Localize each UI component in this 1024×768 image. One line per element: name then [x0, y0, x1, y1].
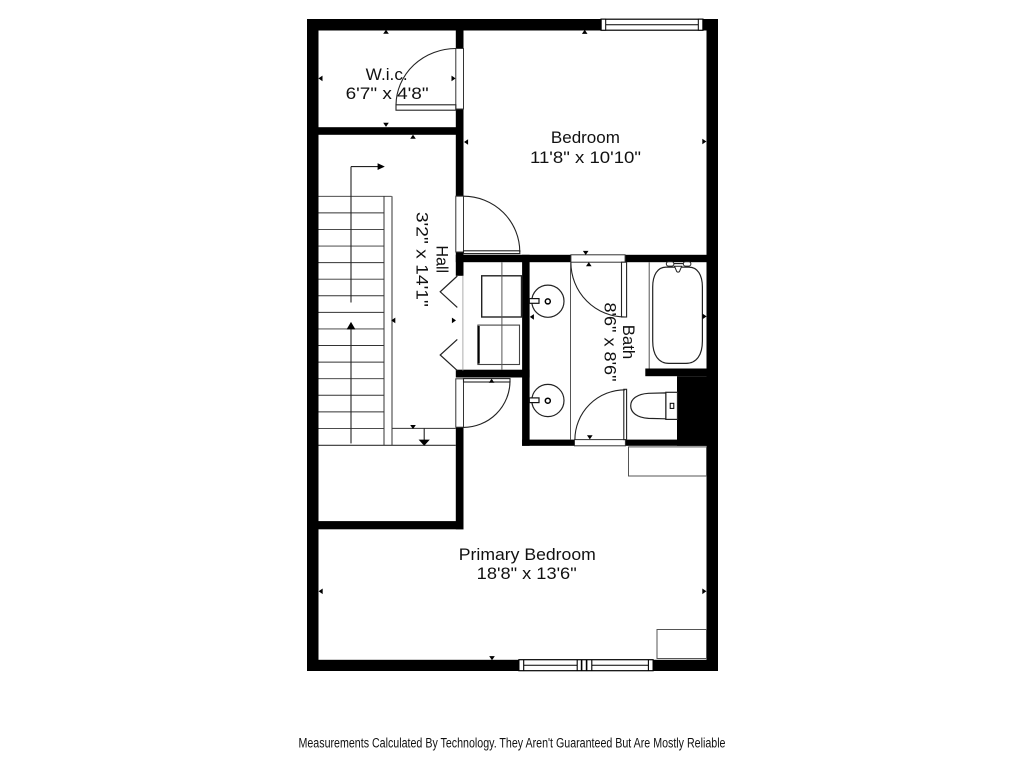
svg-text:Primary Bedroom: Primary Bedroom	[459, 545, 596, 564]
svg-text:Hall: Hall	[433, 246, 452, 274]
svg-text:18'8" x 13'6": 18'8" x 13'6"	[477, 564, 577, 583]
svg-text:8'6" x 8'6": 8'6" x 8'6"	[601, 303, 620, 382]
svg-text:Bath: Bath	[619, 325, 638, 360]
svg-text:Bedroom: Bedroom	[551, 128, 620, 147]
svg-text:3'2" x 14'1": 3'2" x 14'1"	[412, 212, 431, 307]
svg-text:6'7" x 4'8": 6'7" x 4'8"	[346, 84, 429, 103]
svg-text:Measurements Calculated By Tec: Measurements Calculated By Technology. T…	[299, 735, 726, 750]
svg-text:W.i.c.: W.i.c.	[366, 65, 408, 84]
svg-text:11'8" x 10'10": 11'8" x 10'10"	[530, 148, 641, 167]
